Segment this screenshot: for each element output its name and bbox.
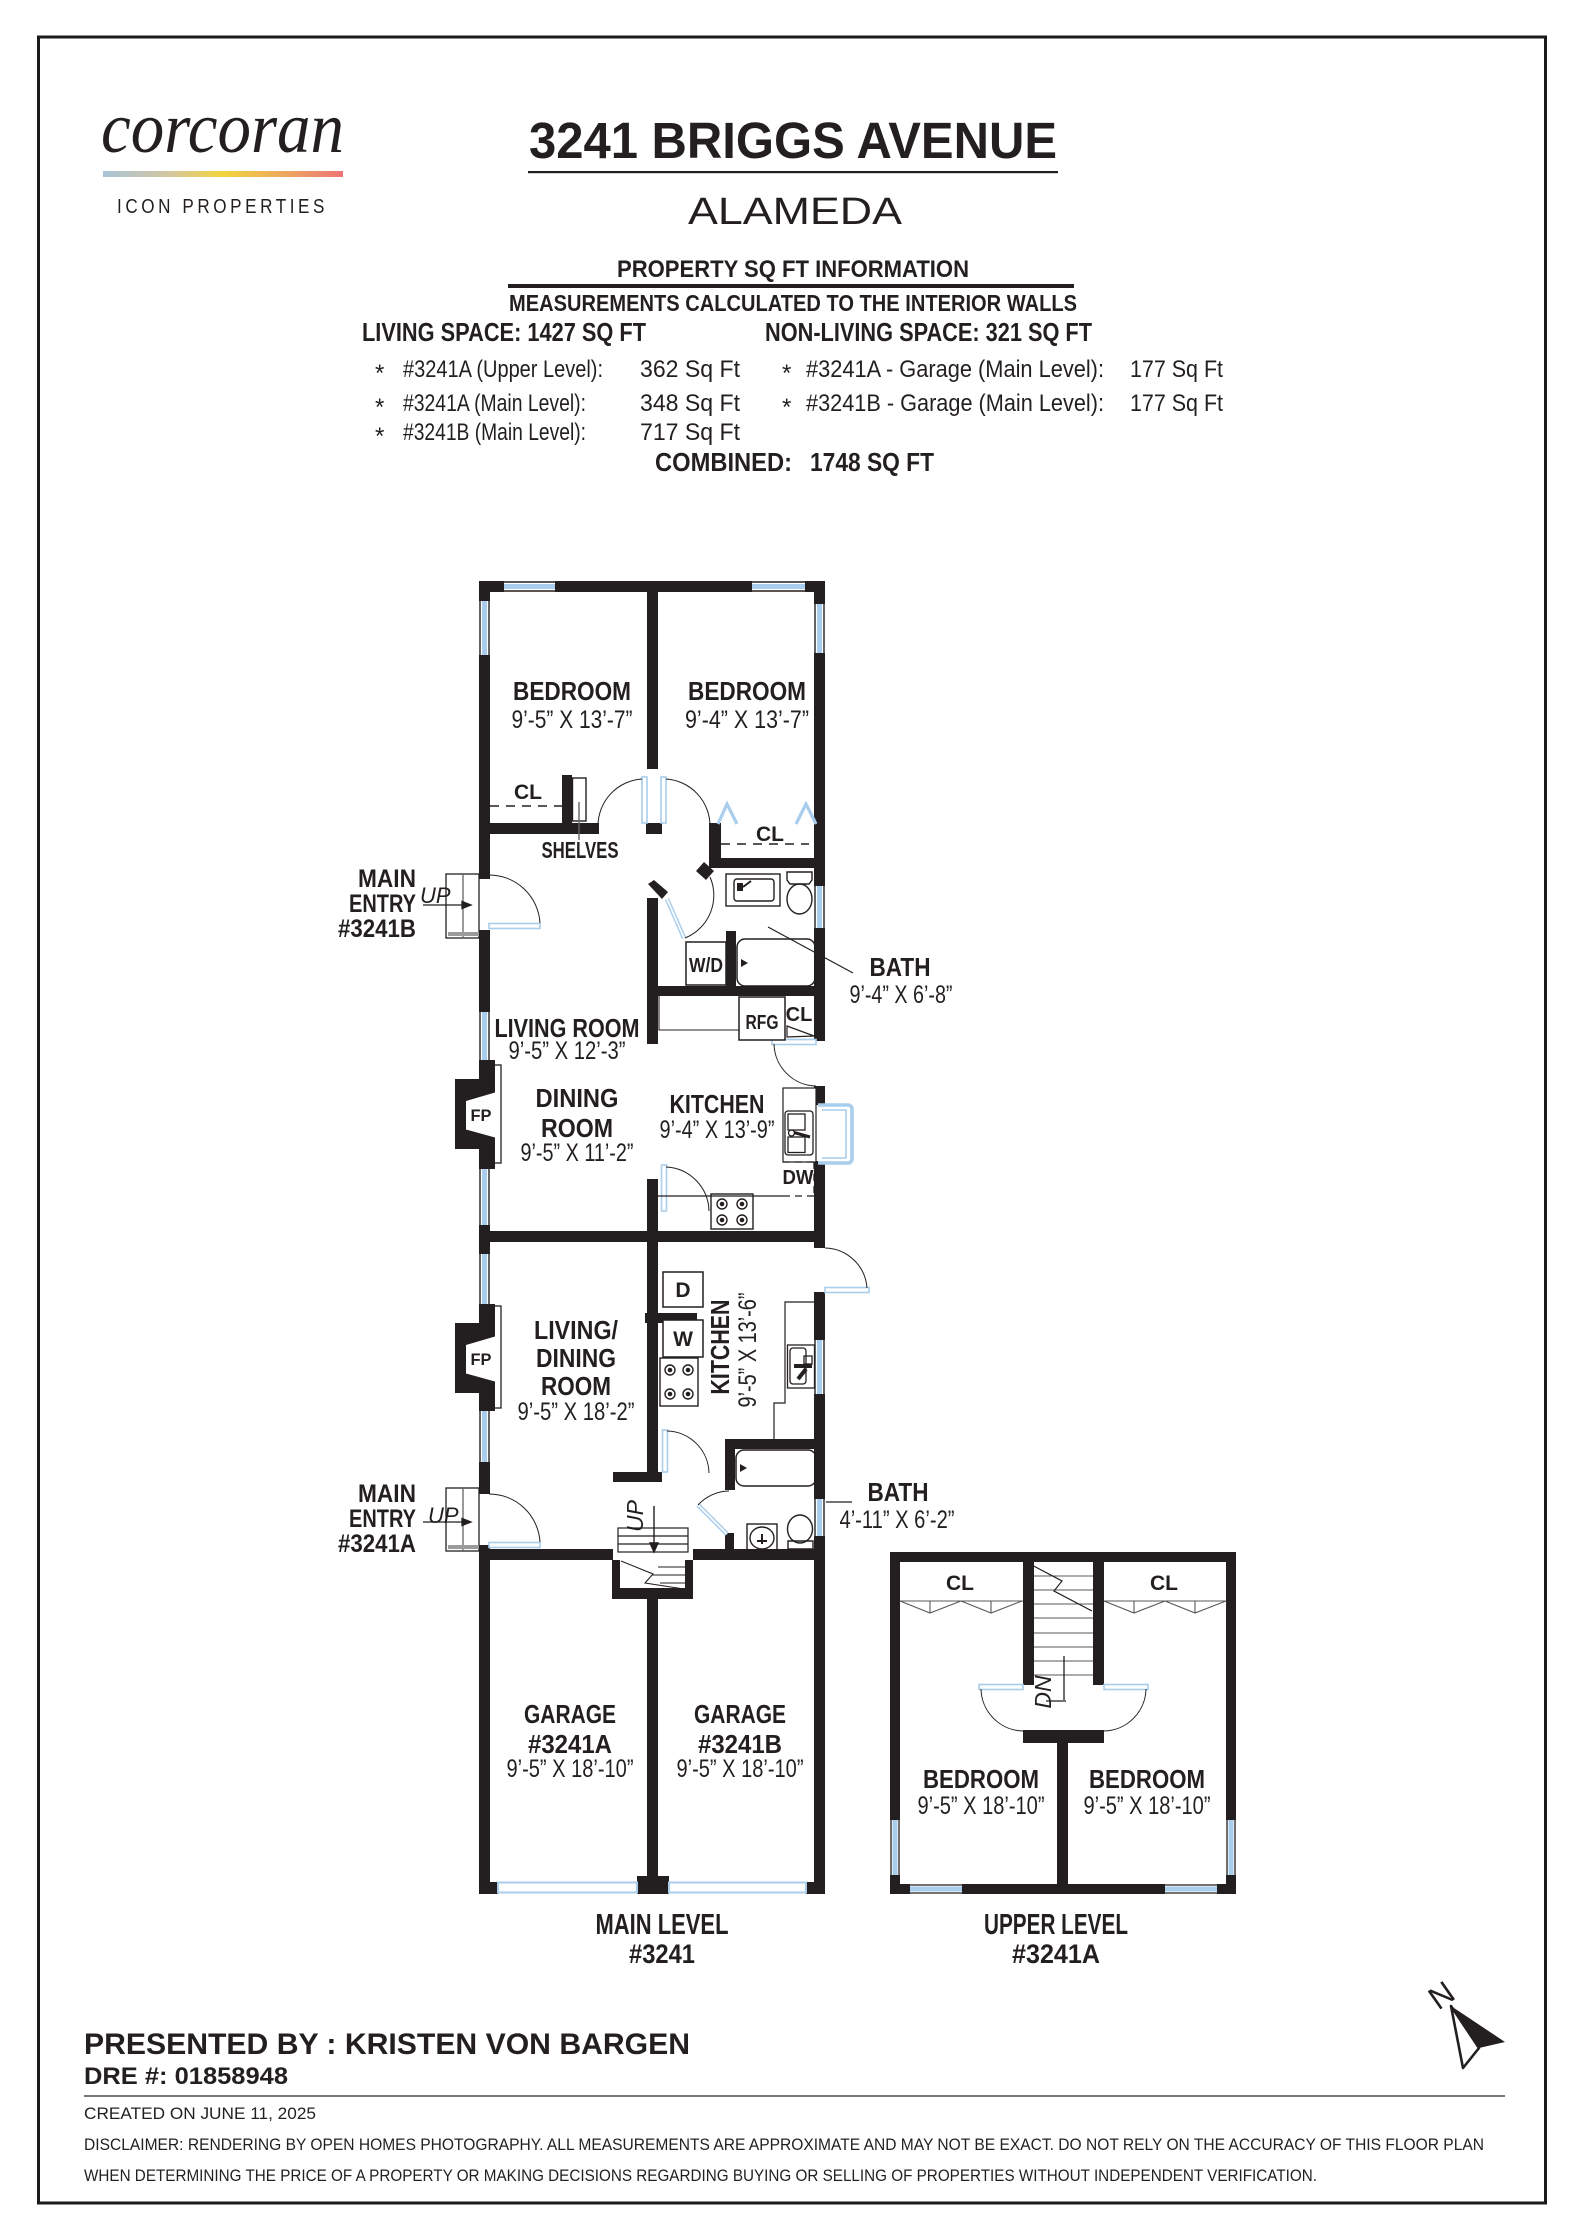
svg-text:SHELVES: SHELVES (542, 837, 619, 863)
svg-text:COMBINED:: COMBINED: (655, 447, 792, 477)
svg-text:UP: UP (428, 1503, 459, 1528)
svg-text:9’-5” X 11’-2”: 9’-5” X 11’-2” (521, 1139, 634, 1167)
svg-text:DINING: DINING (536, 1343, 616, 1373)
svg-text:177 Sq Ft: 177 Sq Ft (1130, 356, 1223, 383)
svg-text:9’-5” X 18’-10”: 9’-5” X 18’-10” (507, 1755, 634, 1783)
svg-text:UPPER LEVEL: UPPER LEVEL (984, 1909, 1128, 1941)
svg-text:DW: DW (783, 1167, 814, 1189)
svg-text:GARAGE: GARAGE (694, 1699, 786, 1729)
svg-text:*: * (375, 360, 384, 387)
svg-text:BATH: BATH (870, 952, 931, 982)
svg-text:D: D (675, 1279, 690, 1302)
svg-text:DISCLAIMER: RENDERING BY OPEN: DISCLAIMER: RENDERING BY OPEN HOMES PHOT… (84, 2136, 1484, 2154)
svg-text:W: W (673, 1328, 693, 1351)
svg-text:9’-5” X 12’-3”: 9’-5” X 12’-3” (509, 1037, 626, 1065)
svg-text:BEDROOM: BEDROOM (513, 676, 631, 706)
svg-text:9’-5” X 13’-7”: 9’-5” X 13’-7” (512, 706, 633, 734)
svg-text:9’-4” X 6’-8”: 9’-4” X 6’-8” (850, 981, 953, 1009)
svg-text:#3241A: #3241A (338, 1530, 416, 1558)
svg-text:1748 SQ FT: 1748 SQ FT (810, 447, 934, 477)
svg-text:LIVING SPACE: 1427 SQ FT: LIVING SPACE: 1427 SQ FT (362, 317, 646, 347)
svg-text:ENTRY: ENTRY (349, 890, 416, 918)
svg-text:FP: FP (471, 1106, 492, 1125)
svg-text:PROPERTY SQ FT INFORMATION: PROPERTY SQ FT INFORMATION (617, 256, 969, 283)
svg-text:9’-5” X 13’-6”: 9’-5” X 13’-6” (734, 1293, 762, 1408)
svg-text:CL: CL (786, 1004, 813, 1026)
svg-text:#3241B: #3241B (338, 915, 416, 943)
svg-text:ICON PROPERTIES: ICON PROPERTIES (117, 196, 328, 218)
svg-text:9’-4” X 13’-9”: 9’-4” X 13’-9” (660, 1116, 775, 1144)
svg-text:WHEN DETERMINING THE PRICE OF: WHEN DETERMINING THE PRICE OF A PROPERTY… (84, 2167, 1317, 2185)
svg-text:#3241B (Main Level):: #3241B (Main Level): (403, 419, 586, 446)
svg-text:UP: UP (420, 883, 451, 908)
svg-text:*: * (782, 394, 791, 421)
svg-text:DINING: DINING (536, 1083, 619, 1113)
svg-text:#3241A (Upper Level):: #3241A (Upper Level): (403, 356, 603, 383)
svg-text:#3241A (Main Level):: #3241A (Main Level): (403, 390, 586, 417)
svg-text:BEDROOM: BEDROOM (923, 1764, 1039, 1794)
svg-text:CL: CL (1150, 1572, 1178, 1595)
svg-text:FP: FP (471, 1350, 492, 1369)
svg-text:*: * (375, 423, 384, 450)
svg-text:#3241B - Garage (Main Level):: #3241B - Garage (Main Level): (806, 390, 1104, 417)
svg-text:CL: CL (514, 781, 542, 804)
svg-text:CL: CL (946, 1572, 974, 1595)
svg-text:9’-5” X 18’-10”: 9’-5” X 18’-10” (1084, 1792, 1211, 1820)
svg-text:MEASUREMENTS CALCULATED TO THE: MEASUREMENTS CALCULATED TO THE INTERIOR … (509, 290, 1077, 316)
svg-text:9’-4” X 13’-7”: 9’-4” X 13’-7” (685, 706, 809, 734)
svg-text:ROOM: ROOM (541, 1371, 611, 1401)
svg-text:348 Sq Ft: 348 Sq Ft (640, 390, 740, 417)
svg-text:9’-5” X 18’-10”: 9’-5” X 18’-10” (918, 1792, 1045, 1820)
svg-text:#3241: #3241 (629, 1939, 695, 1969)
svg-text:ENTRY: ENTRY (349, 1505, 416, 1533)
svg-text:#3241A - Garage (Main Level):: #3241A - Garage (Main Level): (806, 356, 1104, 383)
svg-text:NON-LIVING SPACE: 321 SQ FT: NON-LIVING SPACE: 321 SQ FT (765, 317, 1092, 347)
svg-text:GARAGE: GARAGE (524, 1699, 616, 1729)
svg-text:9’-5” X 18’-10”: 9’-5” X 18’-10” (677, 1755, 804, 1783)
svg-text:CREATED ON JUNE 11, 2025: CREATED ON JUNE 11, 2025 (84, 2104, 316, 2123)
svg-text:DRE #: 01858948: DRE #: 01858948 (84, 2063, 288, 2090)
svg-text:LIVING/: LIVING/ (534, 1315, 618, 1345)
svg-text:ALAMEDA: ALAMEDA (688, 191, 903, 233)
svg-text:PRESENTED BY : KRISTEN VON BAR: PRESENTED BY : KRISTEN VON BARGEN (84, 2028, 690, 2061)
svg-text:*: * (375, 394, 384, 421)
svg-text:362 Sq Ft: 362 Sq Ft (640, 356, 740, 383)
svg-text:UP: UP (622, 1499, 648, 1532)
svg-text:DN: DN (1030, 1675, 1056, 1709)
svg-text:BATH: BATH (868, 1477, 929, 1507)
svg-text:717 Sq Ft: 717 Sq Ft (640, 419, 740, 446)
svg-text:BEDROOM: BEDROOM (1089, 1764, 1205, 1794)
svg-text:KITCHEN: KITCHEN (705, 1300, 735, 1395)
svg-text:9’-5” X 18’-2”: 9’-5” X 18’-2” (518, 1398, 635, 1426)
svg-text:4’-11” X 6’-2”: 4’-11” X 6’-2” (840, 1506, 955, 1534)
svg-text:MAIN LEVEL: MAIN LEVEL (596, 1909, 729, 1941)
svg-text:177 Sq Ft: 177 Sq Ft (1130, 390, 1223, 417)
svg-text:RFG: RFG (746, 1012, 779, 1034)
svg-text:BEDROOM: BEDROOM (688, 676, 806, 706)
svg-text:MAIN: MAIN (358, 865, 416, 893)
svg-text:3241 BRIGGS AVENUE: 3241 BRIGGS AVENUE (529, 112, 1057, 169)
svg-text:KITCHEN: KITCHEN (670, 1089, 765, 1119)
svg-text:W/D: W/D (689, 955, 723, 977)
svg-text:corcoran: corcoran (101, 88, 344, 168)
svg-text:*: * (782, 360, 791, 387)
svg-text:MAIN: MAIN (358, 1480, 416, 1508)
svg-text:#3241A: #3241A (1012, 1939, 1100, 1969)
svg-text:CL: CL (756, 823, 784, 846)
